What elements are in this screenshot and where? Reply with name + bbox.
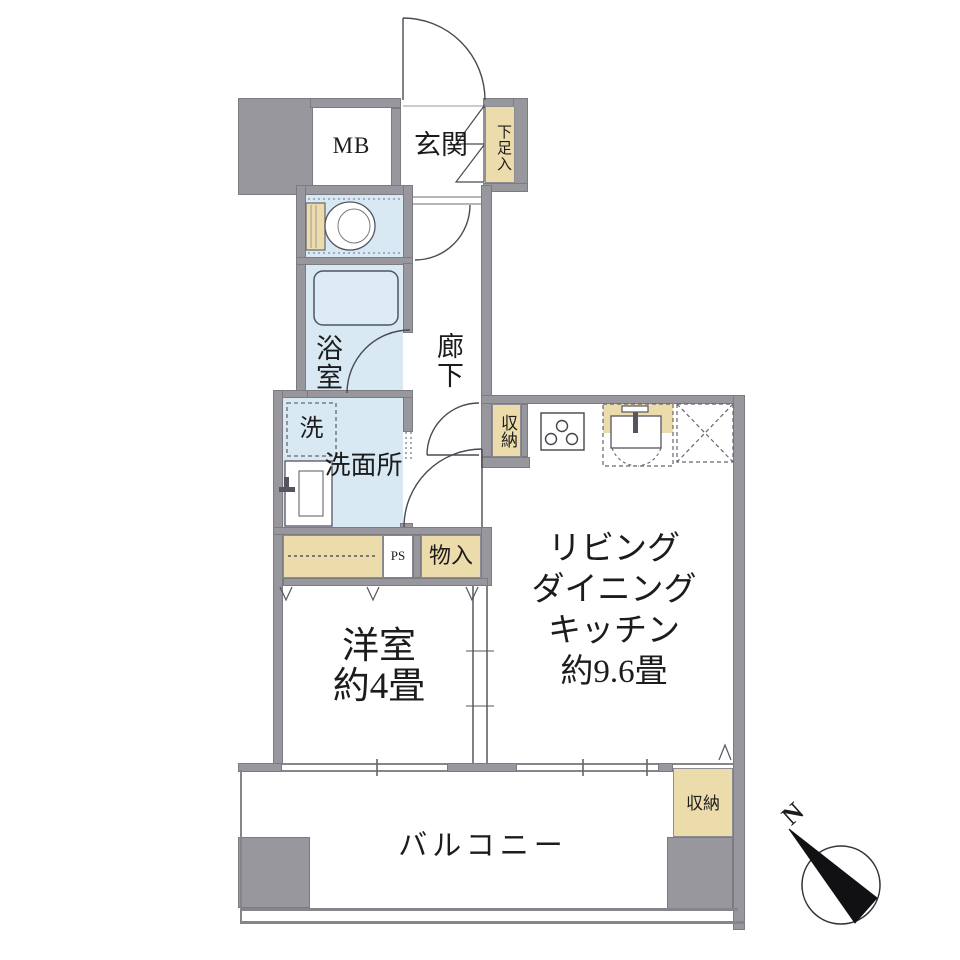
label-ldk-size: 約9.6畳 bbox=[498, 654, 730, 692]
toilet-fixture bbox=[306, 202, 375, 250]
kitchen-sink bbox=[603, 404, 673, 466]
window-ticks bbox=[377, 759, 647, 776]
entrance-door-swing bbox=[403, 18, 485, 106]
folding-door-marks bbox=[280, 587, 478, 600]
label-western-room-name: 洋室 bbox=[279, 626, 479, 669]
label-washer: 洗 bbox=[287, 416, 336, 444]
floor-plan: MB 玄関 下足入 廊下 浴室 洗 洗面所 収納 物入 PS 洋室 約4畳 リビ… bbox=[0, 0, 960, 960]
label-washroom: 洗面所 bbox=[321, 451, 406, 481]
label-storage: 物入 bbox=[421, 543, 481, 568]
bathroom-door-swing bbox=[347, 330, 410, 393]
label-ps: PS bbox=[383, 549, 413, 564]
label-hallway: 廊下 bbox=[433, 330, 463, 392]
label-western-room-size: 約4畳 bbox=[279, 666, 479, 709]
entrance-step bbox=[413, 197, 481, 204]
label-bathroom: 浴室 bbox=[312, 332, 342, 394]
refrigerator-space bbox=[677, 404, 733, 462]
label-balcony: バルコニー bbox=[348, 830, 618, 863]
window-swing-mark bbox=[719, 745, 731, 760]
washroom-door bbox=[406, 432, 411, 462]
label-ldk-line1: リビング bbox=[498, 531, 730, 569]
label-mb: MB bbox=[311, 133, 392, 159]
bathtub bbox=[314, 271, 398, 325]
label-shoe-box: 下足入 bbox=[491, 113, 511, 183]
label-ldk-line2: ダイニング bbox=[498, 572, 730, 610]
label-hall-closet: 収納 bbox=[496, 409, 517, 453]
ldk-door-swing bbox=[404, 403, 482, 527]
label-entrance: 玄関 bbox=[399, 130, 483, 161]
hall-door-swing bbox=[415, 205, 470, 260]
label-balcony-closet: 収納 bbox=[673, 794, 733, 814]
label-ldk-line3: キッチン bbox=[498, 613, 730, 651]
compass bbox=[789, 829, 880, 924]
stove bbox=[541, 413, 584, 450]
